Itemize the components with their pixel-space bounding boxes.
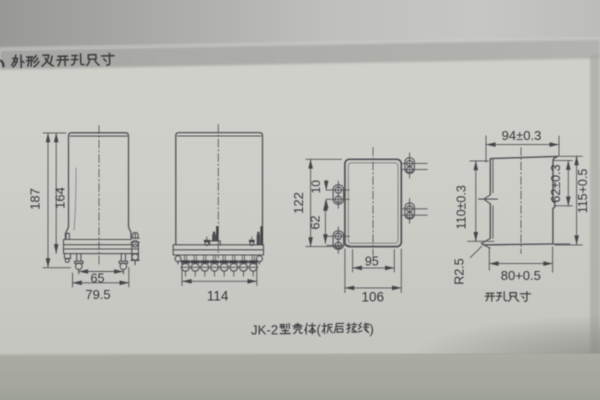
- svg-text:JK-2: JK-2: [251, 322, 278, 337]
- svg-text:80+0.5: 80+0.5: [501, 268, 541, 283]
- svg-text:65: 65: [91, 272, 105, 286]
- svg-text:106: 106: [362, 290, 385, 305]
- svg-text:10: 10: [309, 180, 323, 194]
- svg-text:110±0.3: 110±0.3: [454, 185, 468, 229]
- svg-text:187: 187: [28, 188, 43, 210]
- svg-text:R2.5: R2.5: [453, 258, 467, 284]
- svg-text:164: 164: [53, 187, 68, 209]
- svg-text:(: (: [316, 322, 321, 337]
- svg-text:62: 62: [309, 216, 323, 230]
- svg-text:62±0.3: 62±0.3: [549, 164, 563, 202]
- svg-text:95: 95: [365, 255, 379, 269]
- svg-text:): ): [369, 321, 374, 336]
- svg-text:122: 122: [291, 192, 306, 214]
- svg-text:79.5: 79.5: [85, 287, 110, 302]
- svg-text:94±0.3: 94±0.3: [502, 128, 542, 143]
- svg-text:115+0.5: 115+0.5: [576, 169, 590, 214]
- svg-text:114: 114: [207, 289, 229, 304]
